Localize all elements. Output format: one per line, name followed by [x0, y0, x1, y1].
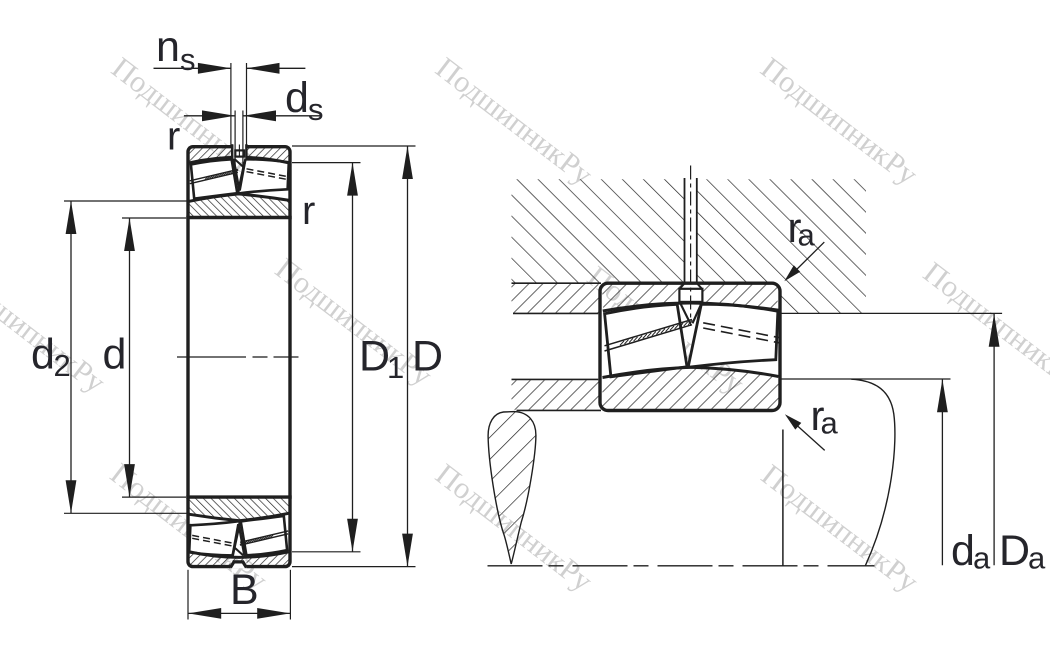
svg-text:d: d	[951, 527, 975, 575]
svg-text:d: d	[31, 331, 55, 379]
svg-text:a: a	[973, 541, 991, 576]
svg-text:a: a	[798, 218, 816, 253]
svg-text:2: 2	[54, 348, 71, 383]
svg-text:d: d	[103, 331, 127, 379]
svg-text:a: a	[1028, 541, 1046, 576]
svg-text:B: B	[230, 566, 259, 614]
svg-text:D: D	[412, 333, 443, 381]
svg-text:r: r	[302, 189, 315, 233]
svg-text:r: r	[167, 115, 180, 159]
svg-text:a: a	[821, 406, 839, 441]
svg-text:1: 1	[387, 350, 404, 385]
svg-text:D: D	[999, 527, 1030, 575]
svg-text:D: D	[359, 333, 390, 381]
svg-text:d: d	[285, 74, 309, 122]
svg-text:n: n	[156, 23, 180, 71]
svg-text:s: s	[180, 42, 196, 77]
svg-text:s: s	[308, 92, 324, 127]
